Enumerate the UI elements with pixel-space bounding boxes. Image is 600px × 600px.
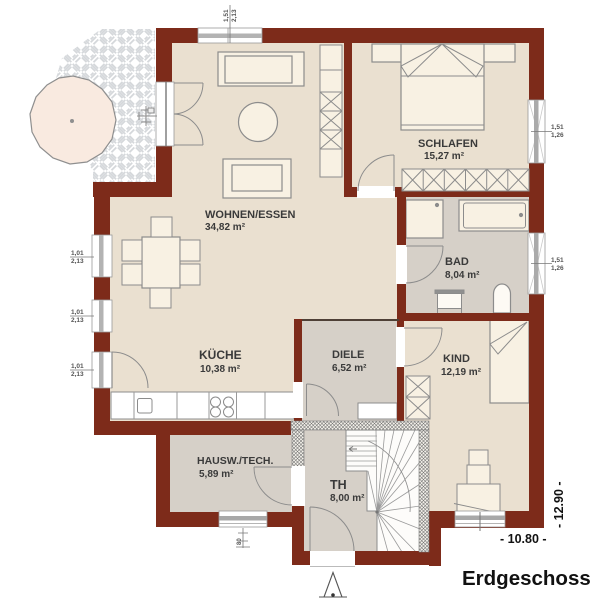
- svg-text:SCHLAFEN: SCHLAFEN: [418, 138, 478, 150]
- svg-text:15,27 m²: 15,27 m²: [424, 151, 465, 162]
- svg-text:- 10.80 -: - 10.80 -: [500, 532, 547, 546]
- svg-text:34,82 m²: 34,82 m²: [205, 222, 246, 233]
- svg-text:KÜCHE: KÜCHE: [199, 347, 242, 362]
- svg-text:8,00 m²: 8,00 m²: [330, 493, 365, 504]
- svg-text:8,04 m²: 8,04 m²: [445, 270, 480, 281]
- svg-text:2,13: 2,13: [231, 9, 238, 22]
- svg-text:12,19 m²: 12,19 m²: [441, 367, 482, 378]
- svg-text:80: 80: [237, 538, 243, 545]
- svg-text:TH: TH: [330, 478, 347, 492]
- svg-text:2,13: 2,13: [71, 317, 84, 324]
- svg-text:WOHNEN/ESSEN: WOHNEN/ESSEN: [205, 209, 296, 221]
- svg-text:1,26: 1,26: [551, 265, 564, 272]
- svg-text:KIND: KIND: [443, 353, 470, 365]
- svg-text:2,13: 2,13: [71, 258, 84, 265]
- svg-text:1,01: 1,01: [71, 309, 84, 316]
- svg-text:1,26: 1,26: [551, 132, 564, 139]
- svg-text:6,52 m²: 6,52 m²: [332, 363, 367, 374]
- svg-text:10,38 m²: 10,38 m²: [200, 364, 241, 375]
- svg-text:1,01: 1,01: [71, 250, 84, 257]
- svg-text:BAD: BAD: [445, 256, 469, 268]
- svg-text:1,01: 1,01: [71, 363, 84, 370]
- svg-text:5,89 m²: 5,89 m²: [199, 469, 234, 480]
- svg-text:1,51: 1,51: [551, 257, 564, 264]
- svg-text:Erdgeschoss: Erdgeschoss: [462, 567, 591, 590]
- svg-text:DIELE: DIELE: [332, 349, 364, 361]
- svg-text:- 12.90 -: - 12.90 -: [552, 481, 566, 528]
- svg-text:1,51: 1,51: [551, 124, 564, 131]
- svg-text:2,13: 2,13: [71, 371, 84, 378]
- svg-text:HAUSW./TECH.: HAUSW./TECH.: [197, 455, 274, 467]
- svg-text:1,51: 1,51: [223, 9, 230, 22]
